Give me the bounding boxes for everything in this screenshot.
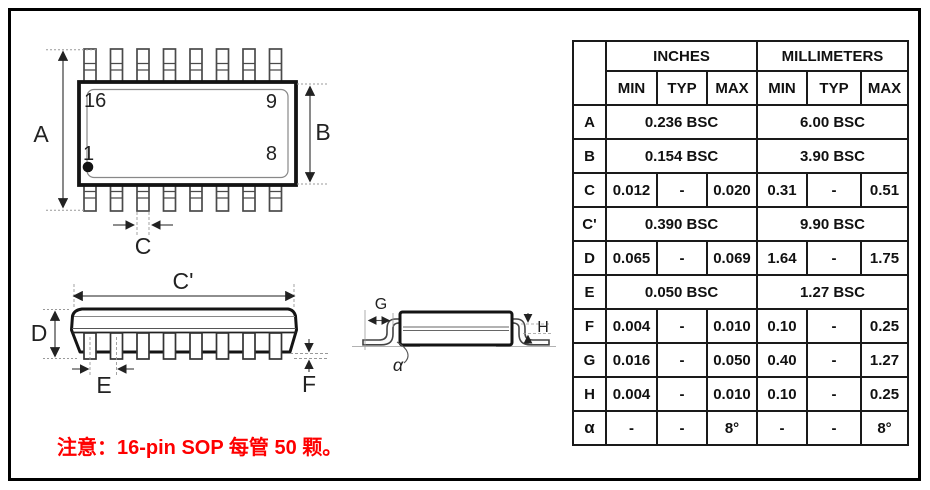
cell: - — [807, 309, 861, 343]
cell: 6.00 BSC — [757, 105, 908, 139]
col-header: MIN — [606, 71, 657, 105]
cell: - — [757, 411, 807, 445]
dim-label-h: H — [537, 319, 549, 336]
cell: - — [657, 377, 707, 411]
cell: - — [807, 241, 861, 275]
dim-label-e: E — [96, 372, 111, 398]
package-body-side-view — [400, 312, 512, 345]
table-row-b: B 0.154 BSC 3.90 BSC — [573, 139, 908, 173]
cell: 0.004 — [606, 377, 657, 411]
cell: 1.75 — [861, 241, 908, 275]
table-row-d: D 0.065 - 0.069 1.64 - 1.75 — [573, 241, 908, 275]
package-outline-page: 16 9 1 8 A B C — [0, 0, 930, 490]
cell: 0.010 — [707, 377, 757, 411]
header-millimeters: MILLIMETERS — [757, 41, 908, 71]
row-symbol: A — [573, 105, 606, 139]
cell: 9.90 BSC — [757, 207, 908, 241]
table-row-c: C 0.012 - 0.020 0.31 - 0.51 — [573, 173, 908, 207]
cell: - — [657, 343, 707, 377]
pin-number-8: 8 — [266, 143, 277, 165]
dim-d: D — [31, 310, 78, 359]
dim-label-b: B — [315, 119, 330, 145]
table-row-h: H 0.004 - 0.010 0.10 - 0.25 — [573, 377, 908, 411]
package-body-front-view — [72, 309, 297, 352]
cell: 0.10 — [757, 309, 807, 343]
cell: - — [657, 411, 707, 445]
dim-f: F — [290, 339, 328, 397]
row-symbol: F — [573, 309, 606, 343]
row-symbol: G — [573, 343, 606, 377]
row-symbol: α — [573, 411, 606, 445]
cell: - — [657, 241, 707, 275]
dim-label-alpha: α — [393, 355, 404, 375]
cell: - — [807, 173, 861, 207]
table-row-c-prime: C' 0.390 BSC 9.90 BSC — [573, 207, 908, 241]
lead-left — [363, 319, 401, 345]
dim-label-c-prime: C' — [172, 268, 193, 294]
top-view-pins-top — [84, 49, 282, 83]
col-header: MIN — [757, 71, 807, 105]
cell: 0.020 — [707, 173, 757, 207]
cell: - — [657, 309, 707, 343]
cell: 3.90 BSC — [757, 139, 908, 173]
packing-note-text: 注意：16-pin SOP 每管 50 颗。 — [57, 437, 342, 459]
cell: 0.154 BSC — [606, 139, 757, 173]
cell: - — [807, 343, 861, 377]
header-inches: INCHES — [606, 41, 757, 71]
table-row-f: F 0.004 - 0.010 0.10 - 0.25 — [573, 309, 908, 343]
dim-label-f: F — [302, 371, 316, 397]
cell: 0.40 — [757, 343, 807, 377]
cell: 0.25 — [861, 377, 908, 411]
packing-note: 注意：16-pin SOP 每管 50 颗。 — [57, 431, 342, 460]
cell: 0.236 BSC — [606, 105, 757, 139]
side-view: G H α — [352, 296, 556, 375]
cell: 0.25 — [861, 309, 908, 343]
row-symbol: C — [573, 173, 606, 207]
row-symbol: D — [573, 241, 606, 275]
top-view: 16 9 1 8 A B C — [33, 49, 330, 259]
cell: 0.065 — [606, 241, 657, 275]
row-symbol: C' — [573, 207, 606, 241]
table-row-e: E 0.050 BSC 1.27 BSC — [573, 275, 908, 309]
cell: 8° — [861, 411, 908, 445]
row-symbol: B — [573, 139, 606, 173]
table-unit-header-row: INCHES MILLIMETERS — [573, 41, 908, 71]
col-header: MAX — [707, 71, 757, 105]
cell: 1.64 — [757, 241, 807, 275]
front-view: C' D E — [31, 268, 328, 398]
cell: 0.050 BSC — [606, 275, 757, 309]
cell: - — [606, 411, 657, 445]
col-header: TYP — [657, 71, 707, 105]
cell: 0.31 — [757, 173, 807, 207]
dimension-table: INCHES MILLIMETERS MIN TYP MAX MIN TYP M… — [572, 40, 909, 446]
cell: 0.010 — [707, 309, 757, 343]
cell: - — [657, 173, 707, 207]
col-header: MAX — [861, 71, 908, 105]
cell: 1.27 — [861, 343, 908, 377]
cell: 0.390 BSC — [606, 207, 757, 241]
cell: - — [807, 377, 861, 411]
table-row-a: A 0.236 BSC 6.00 BSC — [573, 105, 908, 139]
package-body-top-view — [79, 82, 296, 185]
cell: 0.51 — [861, 173, 908, 207]
col-header: TYP — [807, 71, 861, 105]
cell: 0.012 — [606, 173, 657, 207]
cell: 0.10 — [757, 377, 807, 411]
cell: - — [807, 411, 861, 445]
dim-c: C — [113, 212, 173, 259]
dim-c-prime: C' — [74, 268, 294, 308]
cell: 0.016 — [606, 343, 657, 377]
table-corner-cell — [573, 41, 606, 105]
table-row-alpha: α - - 8° - - 8° — [573, 411, 908, 445]
cell: 0.069 — [707, 241, 757, 275]
cell: 0.050 — [707, 343, 757, 377]
dim-label-a: A — [33, 121, 49, 147]
row-symbol: H — [573, 377, 606, 411]
cell: 0.004 — [606, 309, 657, 343]
pin-number-16: 16 — [84, 90, 106, 112]
table-col-header-row: MIN TYP MAX MIN TYP MAX — [573, 71, 908, 105]
cell: 8° — [707, 411, 757, 445]
row-symbol: E — [573, 275, 606, 309]
dim-e: E — [72, 369, 134, 398]
dim-alpha: α — [393, 342, 408, 375]
dim-b: B — [297, 84, 331, 184]
table-row-g: G 0.016 - 0.050 0.40 - 1.27 — [573, 343, 908, 377]
cell: 1.27 BSC — [757, 275, 908, 309]
pin-number-9: 9 — [266, 91, 277, 113]
pin-number-1: 1 — [83, 143, 94, 165]
dim-label-c: C — [135, 233, 152, 259]
dim-label-d: D — [31, 320, 48, 346]
dim-label-g: G — [375, 296, 387, 313]
